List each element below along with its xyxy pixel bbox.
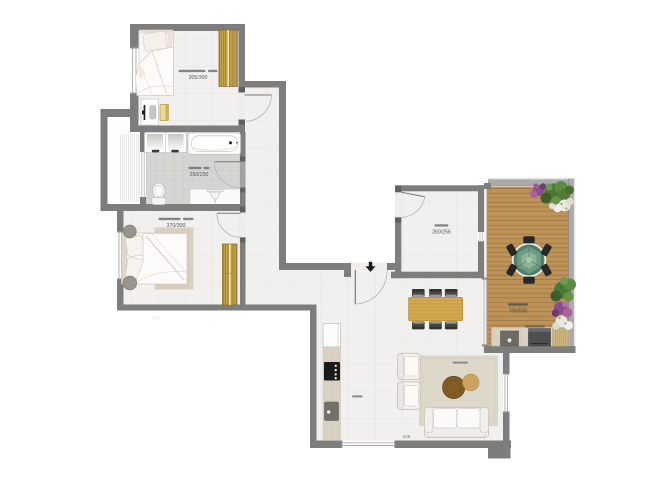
svg-text:370/300: 370/300 <box>167 223 186 229</box>
svg-text:250/230: 250/230 <box>190 172 209 178</box>
svg-text:446: 446 <box>403 434 411 439</box>
svg-text:260/256: 260/256 <box>432 230 451 236</box>
svg-text:700/500: 700/500 <box>509 309 528 315</box>
svg-text:370: 370 <box>152 316 160 321</box>
svg-text:305/300: 305/300 <box>189 75 208 81</box>
